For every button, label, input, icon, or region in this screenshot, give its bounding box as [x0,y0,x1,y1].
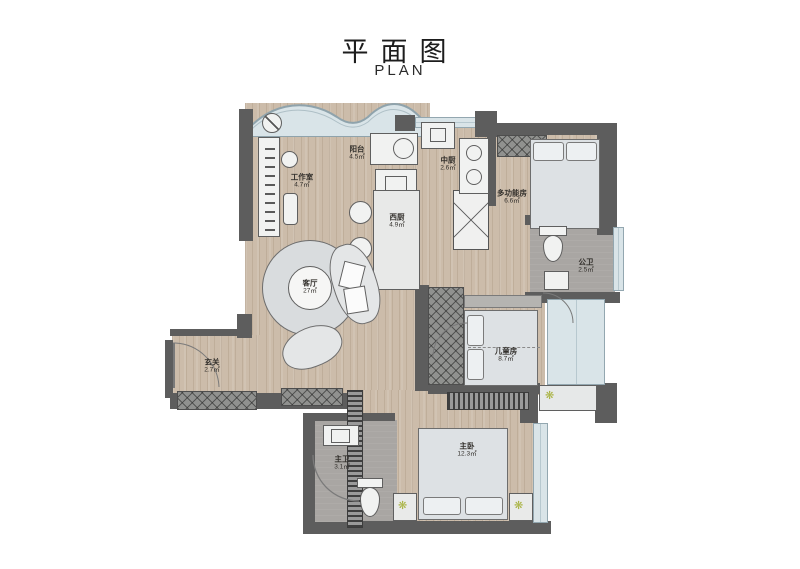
pillow-icon [467,349,484,380]
room-label-living: 客厅 27㎡ [303,278,318,296]
pillow-icon [566,142,597,161]
wall-entry-left [165,340,173,398]
wall-living-left-step [237,314,252,338]
room-label-multi-room: 多功能房 6.6㎡ [497,188,527,206]
window-master-right [533,423,548,523]
page: { "title": { "zh": "平面图", "en": "PLAN" }… [0,0,800,569]
window-bathpublic-right [613,227,624,291]
cabinet-fridge [453,190,489,250]
door-arc-bath-public [543,293,573,323]
washing-machine-drum-icon [393,138,414,159]
room-label-bath-master: 主卫 3.1㎡ [334,454,350,472]
stool-studio-icon [281,151,298,168]
closet-entry-2 [281,388,343,406]
plant-icon: ❋ [398,501,407,512]
wall-top-kitchen-left [395,115,415,131]
wall-top-right [495,123,605,135]
pillow-icon [467,315,484,346]
kitchen-sink-basin-icon [430,128,446,142]
door-arc-kids [433,323,467,357]
sink-master-basin-icon [331,429,350,443]
pillow-icon [423,497,461,515]
room-label-studio: 工作室 4.7㎡ [291,172,314,190]
room-label-kitchen-cn: 中厨 2.6㎡ [440,155,456,173]
stove-burner-2-icon [466,169,482,185]
wall-bay-right-post [595,383,617,423]
wall-kids-left [415,285,429,391]
room-label-master-bed: 主卧 12.3㎡ [457,441,476,459]
sink-public-icon [544,271,569,290]
magazine-icon [343,285,369,314]
plant-icon: ❋ [514,501,523,512]
room-label-kids-room: 儿童房 8.7㎡ [495,346,518,364]
closet-entry-1 [177,391,257,410]
floor-plan: ❋ ❋ ❋ 工作室 4.7㎡ 阳台 4.5㎡ 中厨 2.6㎡ 多功能房 [165,95,635,540]
pillow-icon [465,497,503,515]
pillow-icon [533,142,564,161]
wardrobe-master-top [447,392,529,410]
island-counter [373,190,420,290]
island-stool-1-icon [349,201,372,224]
room-label-kitchen-west: 西厨 4.9㎡ [389,212,405,230]
desk-studio [283,193,298,225]
shelf-column-studio [258,137,280,237]
shelf-kids-top [464,295,542,308]
page-subtitle: PLAN [0,62,800,79]
plant-icon: ❋ [545,391,554,402]
room-label-bath-public: 公卫 2.5㎡ [578,257,594,275]
room-label-entry: 玄关 2.7㎡ [204,357,220,375]
stove-burner-1-icon [466,145,482,161]
wall-studio-left [239,109,253,241]
ac-unit-icon [262,113,282,133]
room-label-balcony: 阳台 4.5㎡ [349,144,365,162]
